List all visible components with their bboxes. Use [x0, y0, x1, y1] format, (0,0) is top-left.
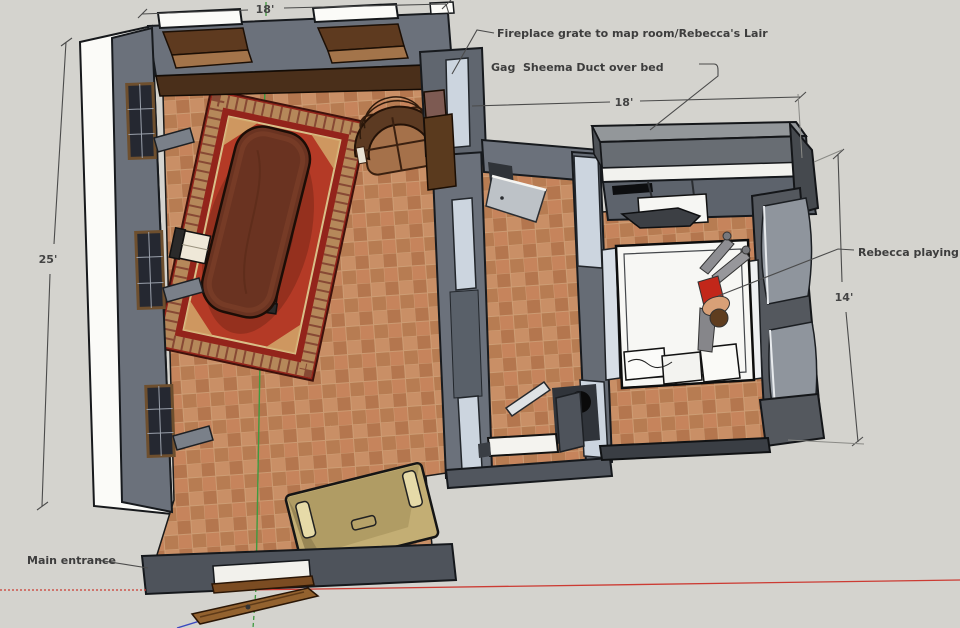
bench: [488, 434, 558, 456]
rebecca-note-label: Rebecca playing: [858, 246, 959, 259]
model-viewport[interactable]: Fireplace grate to map room/Rebecca's La…: [0, 0, 960, 628]
figure-head: [710, 309, 728, 327]
dim-label-bedroom-depth: 14': [835, 291, 854, 304]
closet-arch: [761, 198, 811, 304]
fireplace-note-label: Fireplace grate to map room/Rebecca's La…: [497, 27, 768, 40]
dim-label-bedroom-width: 18': [615, 96, 634, 109]
duct-note-label: Gag Sheema Duct over bed: [491, 61, 664, 74]
floorplan-svg: Fireplace grate to map room/Rebecca's La…: [0, 0, 960, 628]
entrance-note-label: Main entrance: [27, 554, 116, 567]
dim-label-main-depth: 25': [39, 253, 58, 266]
dim-label-main-width: 18': [256, 3, 275, 16]
fireplace-wood: [424, 114, 456, 190]
